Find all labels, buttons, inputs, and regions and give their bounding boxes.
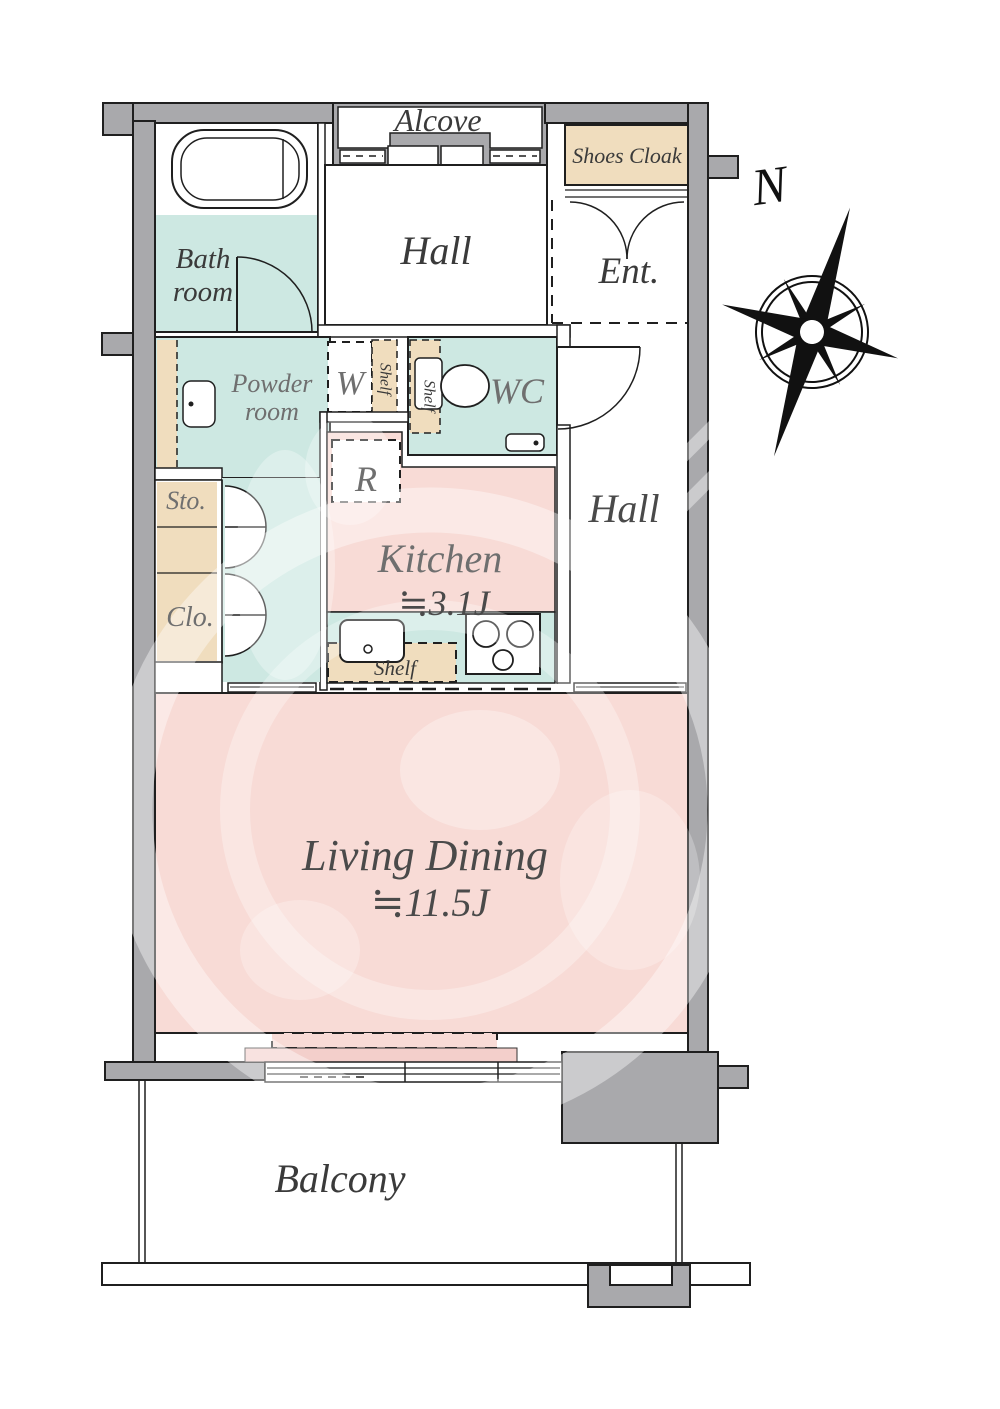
compass-north-label: N (747, 155, 794, 217)
label-shelf-wc: Shelf (420, 380, 437, 415)
wall-top-left (133, 103, 335, 123)
room-label-bathroom-line1: Bath (176, 243, 231, 275)
room-label-alcove: Alcove (392, 102, 481, 138)
label-refrigerator: R (354, 459, 377, 499)
wc-basin-drain (534, 441, 539, 446)
living-bay-dashed (272, 1033, 497, 1048)
wall-powder-storage (155, 468, 222, 480)
label-shelf-kitchen: Shelf (374, 656, 419, 680)
room-label-closet: Clo. (166, 602, 213, 633)
room-label-wc: WC (490, 371, 545, 411)
wall-hall-powder (318, 325, 570, 337)
room-label-bathroom-line2: room (173, 276, 233, 308)
wall-wc-hall-top (557, 325, 570, 347)
wall-bath-hall (318, 123, 325, 337)
room-label-balcony: Balcony (274, 1156, 405, 1201)
balcony-pillar-notch (610, 1265, 672, 1285)
toilet-bowl (441, 365, 489, 407)
floor-plan-page: N Alcove Shoes Cloak Hall Ent. Bath room… (0, 0, 1000, 1404)
room-size-kitchen: ≒3.1J (398, 583, 491, 623)
powder-counter (157, 340, 177, 468)
powder-floor (155, 337, 330, 478)
hall-door-swing (558, 347, 640, 429)
powder-sink (183, 381, 215, 427)
wall-left-mid-tab (102, 333, 133, 355)
label-washer: W (336, 365, 367, 402)
powder-sink-drain (189, 402, 194, 407)
wall-right-tab (708, 156, 738, 178)
room-label-powder-line1: Powder (231, 369, 314, 398)
compass: N (684, 155, 936, 482)
wall-top-right (545, 103, 708, 123)
room-label-entry-hall: Hall (399, 228, 471, 273)
label-shelf-powder: Shelf (376, 363, 393, 398)
room-label-storage: Sto. (166, 486, 206, 515)
kitchen-sink-drain (364, 645, 372, 653)
room-size-living-dining: ≒11.5J (371, 880, 492, 925)
front-door-leaf-2 (441, 146, 483, 165)
room-label-entrance: Ent. (598, 251, 660, 292)
room-label-inner-hall: Hall (587, 486, 659, 531)
room-label-powder-line2: room (245, 397, 299, 426)
front-door-leaf-1 (388, 146, 438, 165)
room-label-shoes-cloak: Shoes Cloak (572, 143, 683, 168)
wall-block-right-tab (718, 1066, 748, 1088)
floor-plan: N Alcove Shoes Cloak Hall Ent. Bath room… (0, 0, 1000, 1404)
room-label-kitchen: Kitchen (377, 536, 502, 581)
room-label-living-dining: Living Dining (301, 831, 548, 880)
